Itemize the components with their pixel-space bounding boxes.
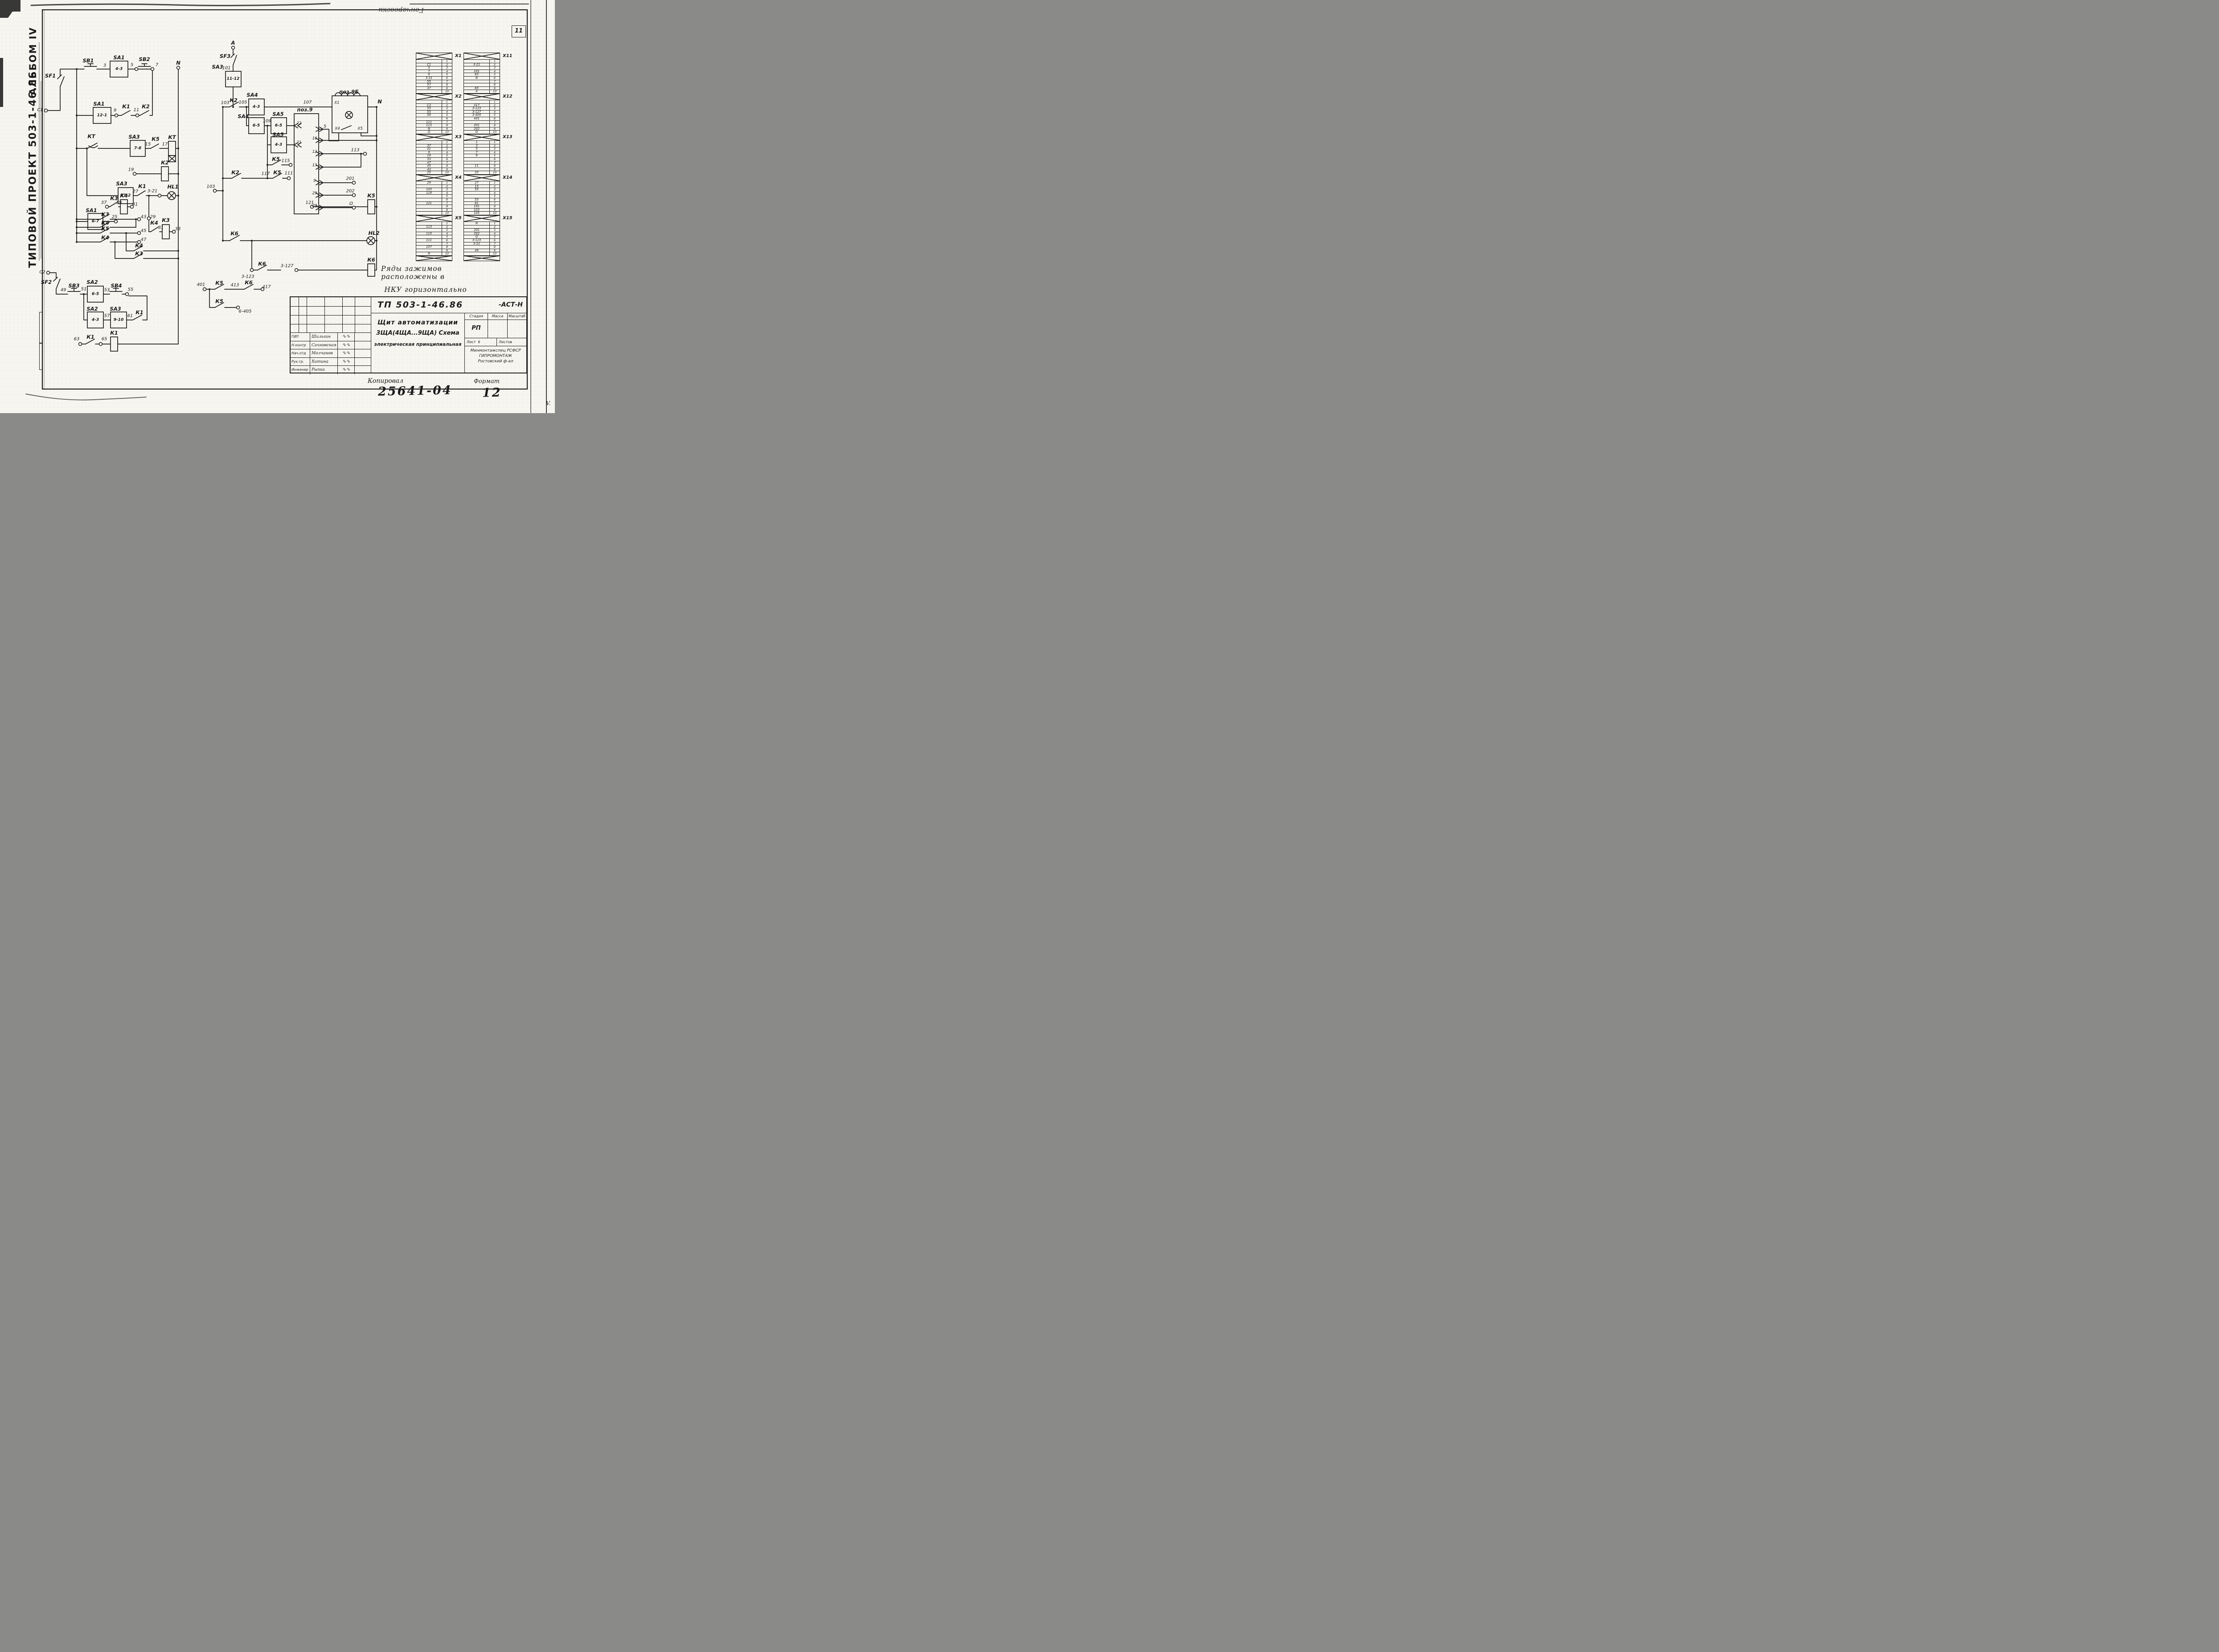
terminal-row: N9 xyxy=(416,127,452,131)
terminal-pin: 2 xyxy=(490,225,500,229)
sheet-value: 6 xyxy=(478,340,480,344)
org-line2: ГИПРОМОНТАЖ xyxy=(465,353,526,359)
terminal-row: 2024 xyxy=(464,232,500,236)
terminal-wire xyxy=(416,141,442,144)
terminal-wire: 113 xyxy=(416,124,442,127)
component-label: К5 xyxy=(152,136,159,142)
terminal-pin: 8 xyxy=(490,246,500,249)
terminal-row: 2018 xyxy=(464,124,500,127)
terminal-pin: 8 xyxy=(442,205,452,208)
component-label: SA2 xyxy=(86,306,98,312)
terminal-wire: 9 xyxy=(464,154,490,157)
strip-header xyxy=(416,53,452,60)
terminal-strip-Х1: 1C125374953-21655757837910 xyxy=(416,53,452,94)
terminal-row: 6 xyxy=(416,198,452,202)
component-label: N xyxy=(377,98,382,105)
terminal-wire: 19 xyxy=(416,154,442,157)
terminal-wire: 7 xyxy=(416,70,442,73)
component-label: 16 xyxy=(312,136,317,141)
wire-label: 3-21 xyxy=(148,189,158,194)
terminal-pin: 1 xyxy=(490,141,500,144)
terminal-pin: 9 xyxy=(442,168,452,171)
terminal-wire: 1 xyxy=(464,141,490,144)
terminal-row: 7 xyxy=(416,242,452,246)
terminal-row: 578 xyxy=(416,83,452,87)
terminal-wire xyxy=(416,60,442,63)
terminal-row: 152 xyxy=(464,185,500,189)
terminal-pin: 3 xyxy=(442,66,452,70)
component-label: SA5 xyxy=(272,111,283,117)
terminal-wire: 3 xyxy=(464,144,490,148)
terminal-wire: 3-123 xyxy=(464,239,490,242)
terminal-pin: 1 xyxy=(490,181,500,184)
signer-row: Рук.гр.Хитина∿∿ xyxy=(291,358,371,366)
terminal-pin: 6 xyxy=(490,198,500,201)
terminal-wire: 15 xyxy=(464,185,490,188)
terminal-row: 336 xyxy=(416,158,452,161)
strip-name-label: Х11 xyxy=(503,53,513,58)
terminal-wire xyxy=(416,198,442,201)
terminal-wire xyxy=(416,185,442,188)
terminal-wire: 119 xyxy=(416,192,442,195)
strip-header xyxy=(464,175,500,181)
component-label: Х1 xyxy=(334,101,339,105)
terminal-row: 5 xyxy=(416,195,452,198)
terminal-wire xyxy=(464,168,490,171)
wire-label: 103 xyxy=(206,184,215,189)
component-label: К4 xyxy=(150,220,158,226)
terminal-wire xyxy=(464,83,490,86)
title-line3: электрическая принципиальная xyxy=(371,342,464,347)
terminal-wire: 37 xyxy=(416,87,442,90)
terminal-wire: 121 xyxy=(416,202,442,205)
component-label: 4-3 xyxy=(92,318,99,322)
terminal-row: 291 xyxy=(416,181,452,185)
component-label: 6-5 xyxy=(275,123,282,128)
component-label: A xyxy=(231,40,235,46)
wire-label: 5 xyxy=(324,124,326,129)
terminal-row: 8 xyxy=(464,83,500,87)
strip-header xyxy=(416,134,452,141)
terminal-wire xyxy=(416,249,442,252)
sheets-label: Листов xyxy=(497,338,526,346)
wire-label: 39 xyxy=(116,201,122,205)
terminal-pin: 8 xyxy=(490,83,500,86)
terminal-pin: 5 xyxy=(442,73,452,76)
scale-label: Масштаб xyxy=(508,313,526,320)
terminal-pin: 9 xyxy=(490,127,500,131)
page-number: 11 xyxy=(515,28,523,34)
terminal-row: 1033 xyxy=(416,188,452,192)
terminal-wire: 3-127 xyxy=(464,111,490,114)
terminal-row: 1 xyxy=(416,222,452,225)
terminal-wire: 37 xyxy=(416,144,442,148)
wire-label: 103 xyxy=(221,101,229,106)
component-label: К6 xyxy=(245,279,252,286)
terminal-pin: 1 xyxy=(442,60,452,63)
signer-name: Шильгин xyxy=(310,333,338,341)
terminal-row: 1078 xyxy=(416,246,452,249)
terminal-wire: 55 xyxy=(416,111,442,114)
wire-label: 41 xyxy=(132,202,138,207)
component-label: КТ xyxy=(168,134,176,140)
terminal-pin: 2 xyxy=(490,144,500,148)
terminal-pin: 5 xyxy=(442,114,452,117)
terminal-wire xyxy=(416,205,442,208)
terminal-row: 1117 xyxy=(416,121,452,124)
terminal-pin: 7 xyxy=(490,242,500,246)
component-label: SF3 xyxy=(220,53,230,59)
terminal-row: 5 xyxy=(464,195,500,198)
terminal-row: 3 xyxy=(464,66,500,70)
terminal-row: 5 xyxy=(416,235,452,239)
strip-name-label: Х13 xyxy=(503,135,513,139)
terminal-row: 3-1233 xyxy=(464,107,500,111)
terminal-pin: 4 xyxy=(442,192,452,195)
terminal-row: 3-1274 xyxy=(464,111,500,114)
terminal-wire: 33 xyxy=(416,158,442,161)
stamp-sheet: 12 xyxy=(482,386,502,400)
component-label: SF2 xyxy=(41,279,52,285)
terminal-pin: 6 xyxy=(490,77,500,80)
terminal-pin: 5 xyxy=(490,235,500,238)
strip-name-label: Х14 xyxy=(503,175,513,180)
terminal-pin: 1 xyxy=(490,100,500,103)
terminal-row: 1217 xyxy=(416,202,452,205)
wire-label: 17 xyxy=(162,142,168,147)
component-label: SB1 xyxy=(82,57,94,64)
title-line1: Щит автоматизации xyxy=(371,319,464,326)
component-label: 6-5 xyxy=(92,292,99,296)
component-label: К1 xyxy=(138,183,146,189)
terminal-pin: 7 xyxy=(490,121,500,124)
terminal-row: 7 xyxy=(464,80,500,84)
terminal-pin: 5 xyxy=(442,195,452,198)
component-label: SB2 xyxy=(139,56,150,62)
terminal-row: 95 xyxy=(416,73,452,77)
terminal-wire xyxy=(416,195,442,198)
terminal-row: 11 xyxy=(464,141,500,144)
terminal-wire: 107 xyxy=(416,246,442,249)
terminal-wire: 111 xyxy=(416,239,442,242)
stage-table: Стадия Масса Масштаб РП Лист 6 Листов Ми… xyxy=(464,313,526,373)
terminal-pin: 5 xyxy=(442,235,452,238)
component-label: 4-3 xyxy=(253,105,260,109)
terminal-pin: 1 xyxy=(442,141,452,144)
terminal-wire: 55 xyxy=(464,188,490,191)
component-label: К5 xyxy=(215,280,223,286)
component-label: К3 xyxy=(162,217,169,223)
wire-label: 101 xyxy=(222,66,230,71)
wire-label: 9 xyxy=(114,108,116,113)
component-label: К3 xyxy=(135,250,143,257)
terminal-pin: 9 xyxy=(490,87,500,90)
terminal-pin: 4 xyxy=(442,151,452,154)
terminal-row: 1154 xyxy=(416,232,452,236)
terminal-wire: 201 xyxy=(464,229,490,232)
wire-label: 417 xyxy=(262,285,271,290)
terminal-pin: 4 xyxy=(442,232,452,235)
terminal-row: 6 xyxy=(464,158,500,161)
component-label: 13 xyxy=(312,163,317,168)
terminal-row: 3-4055 xyxy=(464,114,500,117)
component-label: К1 xyxy=(110,330,118,336)
terminal-wire: 202 xyxy=(464,232,490,235)
sheet-label: Лист xyxy=(467,340,476,344)
terminal-wire: 11 xyxy=(464,164,490,168)
signer-date-cell xyxy=(355,358,371,366)
terminal-pin: 9 xyxy=(442,209,452,212)
terminal-pin: 3 xyxy=(490,229,500,232)
component-label: 6-5 xyxy=(253,123,260,128)
component-label: К4 xyxy=(120,193,127,199)
wire-label: 45 xyxy=(141,229,147,234)
terminal-wire xyxy=(464,195,490,198)
terminal-wire: C2 xyxy=(416,104,442,107)
corner-mark: V. xyxy=(546,400,550,406)
terminal-wire: 3-405 xyxy=(464,114,490,117)
doc-number: ТП 503-1-46.86 xyxy=(377,300,463,310)
terminal-row: 3-216 xyxy=(416,77,452,80)
wire-label: 43 xyxy=(141,215,147,220)
component-label: 12-1 xyxy=(97,113,107,118)
signer-role: Рук.гр. xyxy=(291,358,310,366)
revision-grid xyxy=(291,297,371,333)
terminal-row: 8 xyxy=(416,205,452,209)
signer-row: Н.контрСахновская∿∿ xyxy=(291,341,371,350)
terminal-wire: 3-21 xyxy=(464,242,490,246)
terminal-row: 95 xyxy=(464,154,500,158)
signature-squiggle: ∿∿ xyxy=(338,349,355,357)
terminal-row: 617 xyxy=(464,202,500,205)
terminal-wire: 101 xyxy=(464,70,490,73)
terminal-pin: 2 xyxy=(442,104,452,107)
terminal-pin: 9 xyxy=(442,127,452,131)
terminal-pin: 4 xyxy=(490,151,500,154)
component-label: SA1 xyxy=(113,54,124,61)
component-label: 6-7 xyxy=(92,219,99,224)
terminal-row: 2 xyxy=(416,185,452,189)
terminal-row: 659 xyxy=(464,87,500,90)
terminal-row: 53 xyxy=(416,66,452,70)
terminal-pin: 5 xyxy=(490,73,500,76)
terminal-wire: 9 xyxy=(416,73,442,76)
component-label: К5 xyxy=(367,193,375,199)
terminal-pin: 4 xyxy=(490,111,500,114)
terminal-wire: 401 xyxy=(464,117,490,120)
terminal-wire: 113 xyxy=(416,225,442,229)
terminal-wire: Ω xyxy=(464,235,490,238)
signer-name: Рыпка xyxy=(310,366,338,374)
terminal-pin: 2 xyxy=(442,185,452,188)
terminal-pin: 6 xyxy=(490,239,500,242)
component-label: SA1 xyxy=(86,207,97,213)
wire-label: 25 xyxy=(112,215,118,220)
terminal-pin: 9 xyxy=(490,249,500,252)
terminal-pin: 4 xyxy=(442,70,452,73)
terminal-row: 9 xyxy=(416,209,452,212)
terminal-pin: 3 xyxy=(490,66,500,70)
org-line3: Ростовский ф-ал xyxy=(465,359,526,364)
component-label: К2 xyxy=(142,103,149,110)
component-label: SA3 xyxy=(128,134,139,140)
component-label: SA3 xyxy=(110,306,121,312)
terminal-row: 439 xyxy=(416,168,452,172)
terminal-wire: 45 xyxy=(416,164,442,168)
terminal-row: 499 xyxy=(464,249,500,253)
terminal-pin: 2 xyxy=(442,63,452,66)
signer-date-cell xyxy=(355,333,371,341)
strip-name-label: Х15 xyxy=(503,216,513,221)
terminal-wire: 7 xyxy=(464,151,490,154)
top-handwriting: Гончаровски xyxy=(357,6,446,14)
wire-label: 63 xyxy=(74,337,80,342)
terminal-row: N6 xyxy=(464,77,500,80)
component-label: 7-8 xyxy=(134,146,141,151)
terminal-pin: 6 xyxy=(490,117,500,120)
wire-label: 115 xyxy=(281,159,290,164)
terminal-strip-Х2: 1C22533554595611171138N9Ω10 xyxy=(416,93,452,135)
component-label: 29 xyxy=(312,191,317,196)
terminal-wire: 27 xyxy=(464,181,490,184)
terminal-pin: 5 xyxy=(442,154,452,157)
terminal-pin: 7 xyxy=(442,161,452,164)
terminal-pin: 8 xyxy=(442,124,452,127)
component-label: SA3 xyxy=(116,180,127,187)
signer-name: Хитина xyxy=(310,358,338,366)
component-label: К2 xyxy=(231,169,239,176)
component-label: 11-12 xyxy=(227,77,240,81)
terminal-pin: 2 xyxy=(442,144,452,148)
terminal-pin: 1 xyxy=(490,60,500,63)
wire-label: 7 xyxy=(156,63,158,68)
component-label: К6 xyxy=(230,230,238,237)
component-label: 21 xyxy=(297,140,302,145)
terminal-pin: 4 xyxy=(442,111,452,114)
terminal-wire: 53 xyxy=(416,107,442,110)
component-label: SB4 xyxy=(111,283,122,289)
margin-stamp-box xyxy=(39,343,42,370)
terminal-pin: 4 xyxy=(490,232,500,235)
mass-label: Масса xyxy=(488,313,508,320)
terminal-wire: 101 xyxy=(464,205,490,208)
terminal-pin: 1 xyxy=(442,181,452,184)
terminal-wire xyxy=(416,235,442,238)
terminal-wire: 3-21 xyxy=(464,63,490,66)
strip-name-label: Х2 xyxy=(455,94,462,99)
terminal-row: 1138 xyxy=(416,124,452,127)
wire-label: 29 xyxy=(150,215,156,220)
strip-header xyxy=(464,53,500,60)
component-label: HL2 xyxy=(369,230,380,236)
terminal-row: 9 xyxy=(416,249,452,253)
component-label: Х4 xyxy=(335,127,340,131)
terminal-row: 1132 xyxy=(416,225,452,229)
terminal-strip-Х3: 1372413941953364774584392510 xyxy=(416,134,452,175)
terminal-pin: 5 xyxy=(490,195,500,198)
strip-name-label: Х4 xyxy=(455,175,462,180)
terminal-wire: 65 xyxy=(464,87,490,90)
wire-label: C2 xyxy=(39,270,45,275)
strip-header xyxy=(464,94,500,100)
signer-name: Сахновская xyxy=(310,341,338,349)
signer-date-cell xyxy=(355,341,371,349)
component-label: К5 xyxy=(272,156,279,162)
wire-label: 121 xyxy=(305,201,314,205)
terminal-pin: 1 xyxy=(442,100,452,103)
stage-label: Стадия xyxy=(465,313,488,320)
component-label: HL1 xyxy=(168,184,179,190)
terminal-row: 32 xyxy=(464,144,500,148)
terminal-strip-Х14: 271152553455366171018103910510 xyxy=(463,174,500,216)
wire-label: 109 xyxy=(263,119,271,124)
terminal-row: 94 xyxy=(416,151,452,155)
terminal-row: 8 xyxy=(464,246,500,249)
terminal-strip-Х15: N1220132024Ω53-12363-217849910 xyxy=(463,215,500,256)
margin-stamp-box xyxy=(39,312,42,343)
scanned-schematic-sheet: АЛЬБОМ IV ТИПОВОЙ ПРОЕКТ 503-1-46.86 11 … xyxy=(0,0,555,413)
component-label: К4 xyxy=(101,234,109,241)
terminal-row: 74 xyxy=(416,70,452,74)
terminal-pin: 8 xyxy=(490,124,500,127)
strip-name-label: Х12 xyxy=(503,94,513,99)
wire-label: 51 xyxy=(81,287,87,292)
stage-value: РП xyxy=(465,320,488,338)
org-line1: Минмонтажспец РСФСР xyxy=(465,348,526,353)
terminal-wire: 63 xyxy=(464,73,490,76)
terminal-row: 372 xyxy=(416,144,452,148)
terminal-wire: 41 xyxy=(416,148,442,151)
signer-name: Молчанов xyxy=(310,349,338,357)
terminal-wire: 5 xyxy=(416,66,442,70)
terminal-pin: 2 xyxy=(490,63,500,66)
wire-label: 53 xyxy=(104,288,110,293)
terminal-wire: 47 xyxy=(416,161,442,164)
terminal-row: 635 xyxy=(464,73,500,77)
terminal-pin: 3 xyxy=(442,229,452,232)
terminal-pin: 7 xyxy=(442,202,452,205)
terminal-row: 3-1236 xyxy=(464,239,500,242)
terminal-wire: 53 xyxy=(464,198,490,201)
wire-label: 107 xyxy=(303,100,312,105)
terminal-wire xyxy=(416,209,442,212)
terminal-row: C22 xyxy=(416,104,452,107)
component-label: КТ xyxy=(87,133,95,139)
stamp-number: 25641-04 xyxy=(378,383,452,398)
terminal-wire: 3-123 xyxy=(464,107,490,110)
terminal-pin: 7 xyxy=(442,121,452,124)
terminal-wire: 202 xyxy=(464,127,490,131)
component-label: К5 xyxy=(215,298,223,304)
wire-label: 5 xyxy=(131,63,133,68)
terminal-pin: 2 xyxy=(490,104,500,107)
terminal-pin: 1 xyxy=(490,222,500,225)
signer-row: ГИПШильгин∿∿ xyxy=(291,333,371,341)
signer-role: ГИП xyxy=(291,333,310,341)
terminal-row: 74 xyxy=(464,151,500,155)
component-label: Х5 xyxy=(357,127,362,131)
terminal-row: 2 xyxy=(464,225,500,229)
signer-role: Нач.отд xyxy=(291,349,310,357)
wire-label: 401 xyxy=(197,283,205,287)
strip-header xyxy=(416,215,452,222)
terminal-row: 595 xyxy=(416,114,452,117)
terminal-pin: 9 xyxy=(442,87,452,90)
component-label: SA3 xyxy=(212,64,223,70)
terminal-row: 379 xyxy=(416,87,452,90)
terminal-pin: 2 xyxy=(442,225,452,229)
signer-date-cell xyxy=(355,349,371,357)
